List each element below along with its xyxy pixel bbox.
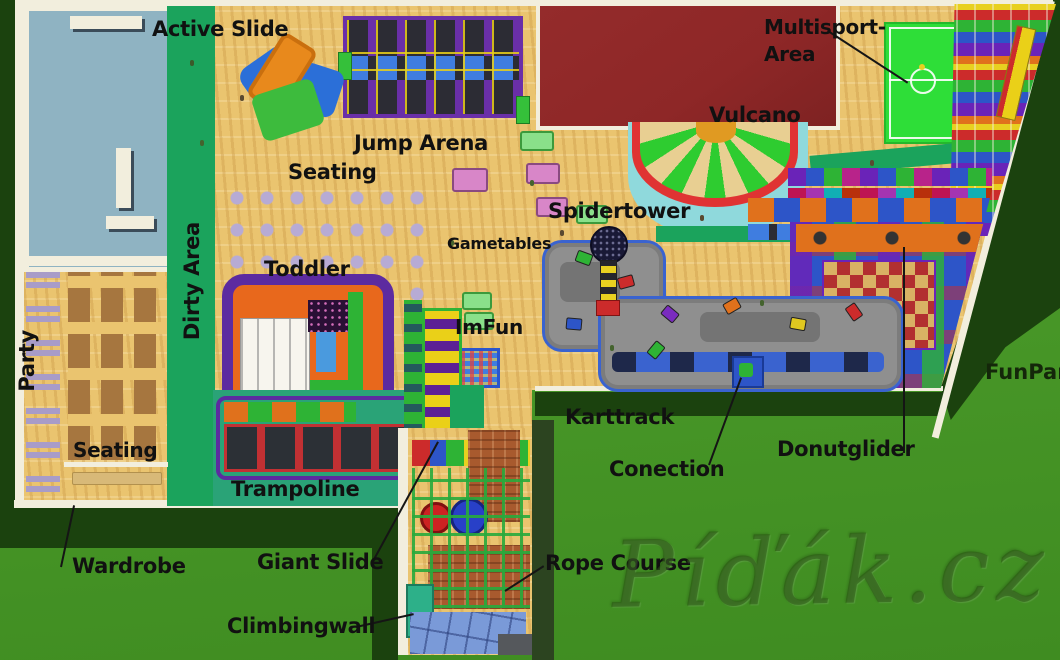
label-spidertower: Spidertower (548, 200, 690, 222)
spidertower-structure (590, 226, 628, 264)
label-imfun: ImFun (455, 317, 523, 338)
label-conection: Conection (609, 458, 724, 480)
entrance-area (24, 6, 180, 272)
toddler-pool (316, 332, 336, 372)
playground-band (788, 168, 992, 186)
label-active-slide: Active Slide (152, 18, 288, 40)
trampoline-mats (224, 424, 416, 472)
label-multisport-line1: Multisport- (764, 17, 886, 38)
entrance-wall-segment (116, 148, 131, 208)
kart (566, 317, 583, 330)
seating-left-tables (68, 272, 166, 460)
spidertower-column (600, 260, 617, 302)
protrusion-right-shadow (532, 420, 554, 660)
label-trampoline: Trampoline (231, 478, 359, 500)
label-giant-slide: Giant Slide (257, 551, 383, 573)
gametable-green (520, 131, 554, 151)
label-seating-center: Seating (288, 161, 377, 183)
ball (919, 64, 925, 70)
donutglider-orange-deck (796, 224, 986, 252)
toddler-structure (240, 318, 310, 398)
spidertower-base (596, 300, 620, 316)
entrance-wall-segment (70, 16, 142, 29)
label-karttrack: Karttrack (565, 406, 674, 428)
people-dots (190, 60, 194, 66)
label-vulcano: Vulcano (709, 104, 801, 126)
kart (789, 317, 807, 332)
label-climbingwall: Climbingwall (227, 615, 375, 637)
party-divider-wall (20, 256, 170, 266)
label-party: Party (16, 330, 38, 392)
entrance-wall-segment (106, 216, 154, 229)
label-multisport-line2: Area (764, 44, 815, 65)
label-seating-left: Seating (73, 440, 157, 461)
wardrobe-bench (72, 472, 162, 485)
label-wardrobe: Wardrobe (72, 555, 186, 577)
bottom-shadow-band (0, 506, 400, 548)
tile-floor-dark-corner (498, 634, 532, 655)
label-funpark: FunPark (985, 360, 1060, 384)
jump-arena-grid-lines (347, 20, 519, 114)
protrusion-left-shadow (372, 508, 398, 660)
jump-arena-structure (343, 16, 523, 118)
toddler-green-path (348, 292, 363, 392)
label-donutglider: Donutglider (777, 438, 915, 460)
watermark-text: Píďák.cz (611, 514, 1051, 629)
left-wall (15, 0, 24, 508)
gametable-pink (452, 168, 488, 192)
multisport-field (884, 22, 962, 144)
toddler-ballpit (308, 300, 348, 332)
funpark-floorplan: Active Slide Jump Arena Seating Dirty Ar… (0, 0, 1060, 660)
playground-band-orange-blue (748, 198, 992, 222)
wardrobe-wall (64, 462, 168, 467)
label-toddler: Toddler (264, 258, 350, 280)
trampoline-pads (224, 402, 356, 422)
label-gametables: Gametables (447, 236, 551, 253)
donutglider-leader-line (903, 247, 905, 453)
gametable-green (462, 292, 492, 310)
field-center-circle (910, 68, 936, 94)
jump-arena-step (516, 96, 530, 124)
gametable-pink (526, 163, 560, 184)
label-dirty-area: Dirty Area (181, 222, 203, 340)
label-jump-arena: Jump Arena (354, 132, 488, 154)
conection-module-hatch (739, 363, 753, 377)
imfun-panel (458, 348, 500, 388)
